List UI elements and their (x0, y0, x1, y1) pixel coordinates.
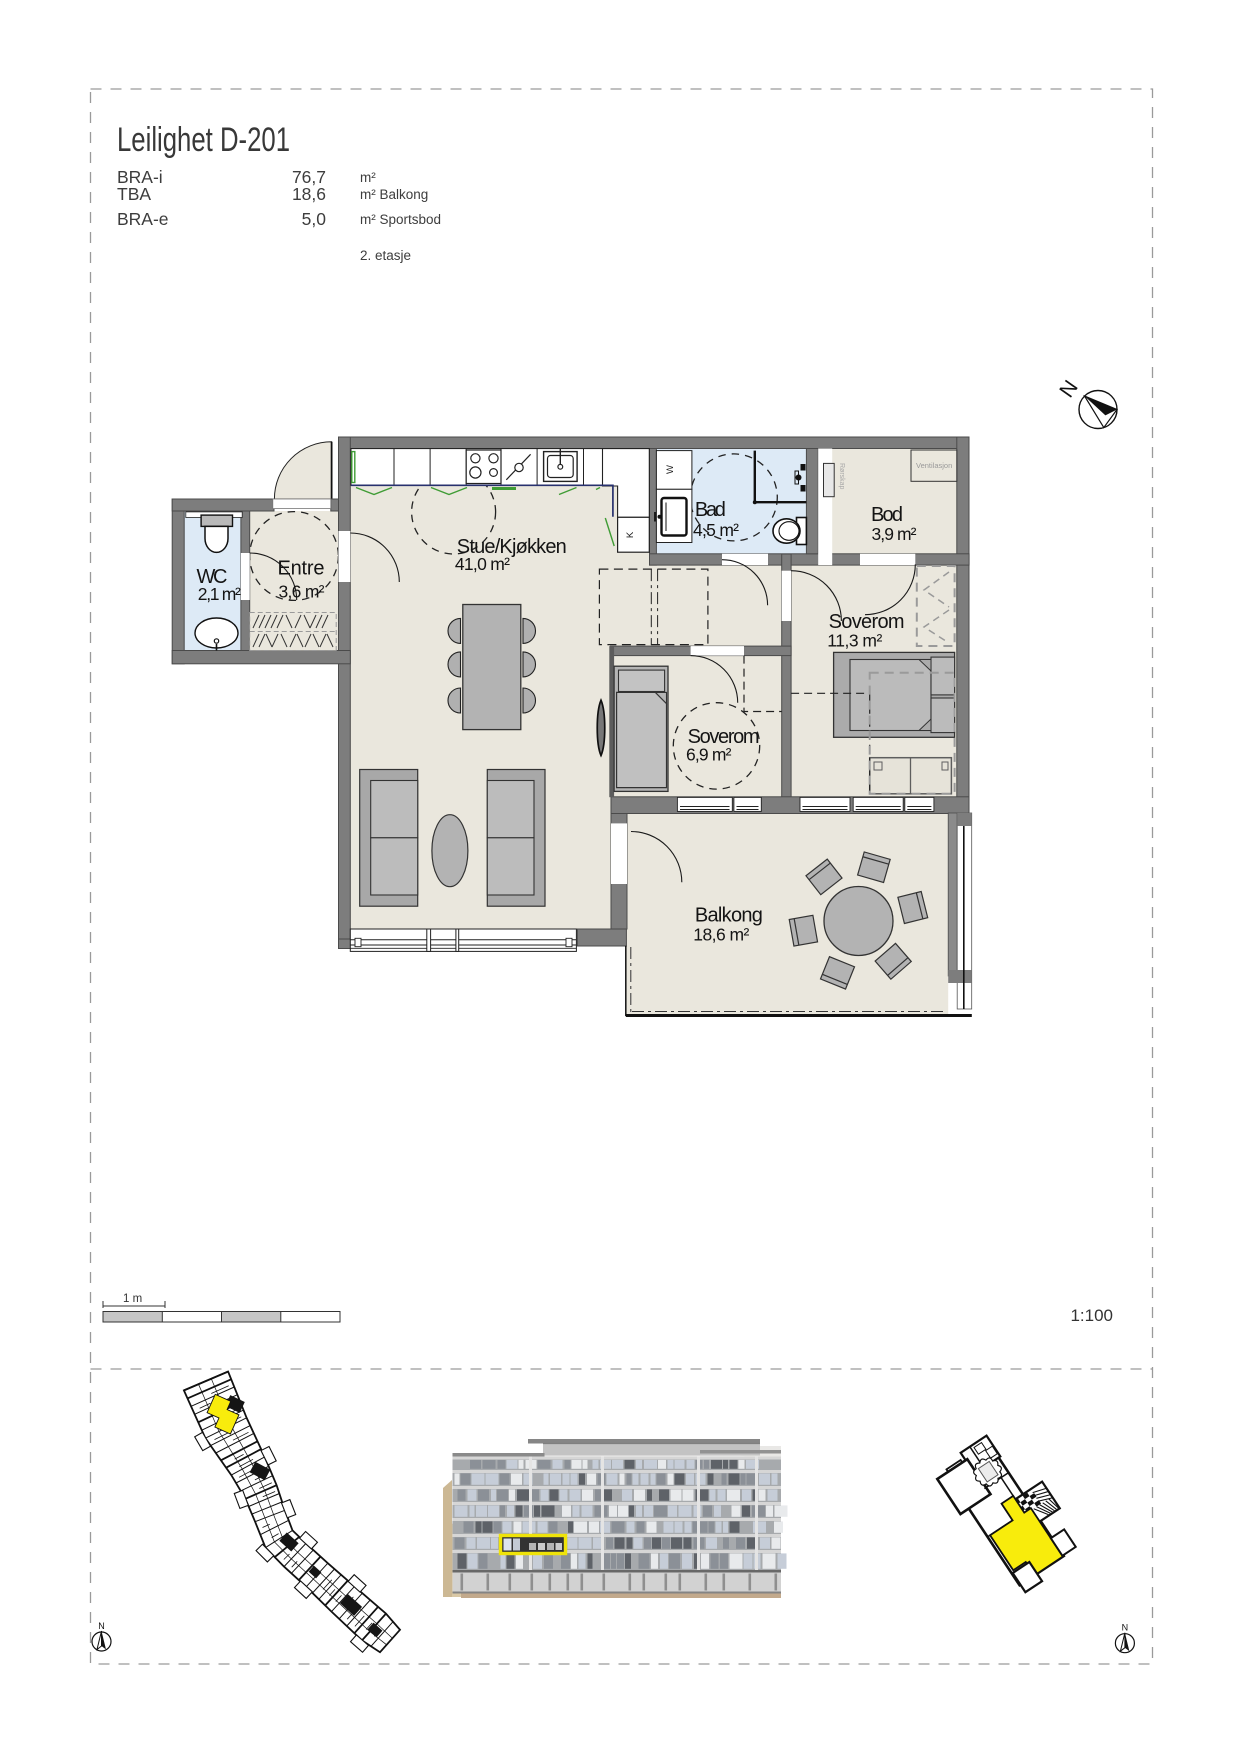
svg-text:Rørskap: Rørskap (838, 463, 845, 490)
svg-text:1:100: 1:100 (1070, 1306, 1113, 1325)
svg-text:3,6 m²: 3,6 m² (279, 582, 325, 602)
svg-text:K: K (625, 531, 636, 538)
svg-text:2,1 m²: 2,1 m² (198, 584, 241, 604)
svg-text:6,9 m²: 6,9 m² (686, 745, 732, 765)
svg-text:Bod: Bod (871, 504, 903, 526)
svg-text:41,0 m²: 41,0 m² (455, 554, 510, 574)
svg-text:Entre: Entre (278, 558, 325, 580)
svg-text:18,6: 18,6 (292, 184, 326, 204)
svg-text:m² Balkong: m² Balkong (360, 187, 428, 202)
svg-text:11,3 m²: 11,3 m² (827, 631, 882, 651)
svg-text:4,5 m²: 4,5 m² (693, 520, 739, 540)
svg-text:1 m: 1 m (123, 1293, 142, 1305)
svg-text:18,6 m²: 18,6 m² (693, 925, 749, 945)
svg-text:Balkong: Balkong (695, 905, 763, 927)
svg-text:m²: m² (360, 170, 376, 185)
svg-text:BRA-e: BRA-e (117, 209, 169, 229)
svg-text:Ventilasjon: Ventilasjon (916, 461, 952, 470)
svg-text:N: N (98, 1621, 105, 1631)
svg-text:3,9 m²: 3,9 m² (872, 524, 917, 544)
svg-text:5,0: 5,0 (302, 209, 327, 229)
svg-text:N: N (1122, 1623, 1129, 1633)
svg-text:Bad: Bad (695, 499, 726, 521)
svg-text:m² Sportsbod: m² Sportsbod (360, 212, 441, 227)
svg-text:2. etasje: 2. etasje (360, 248, 411, 263)
svg-text:Leilighet D-201: Leilighet D-201 (117, 121, 290, 159)
svg-text:W: W (665, 465, 676, 474)
svg-text:TBA: TBA (117, 184, 151, 204)
